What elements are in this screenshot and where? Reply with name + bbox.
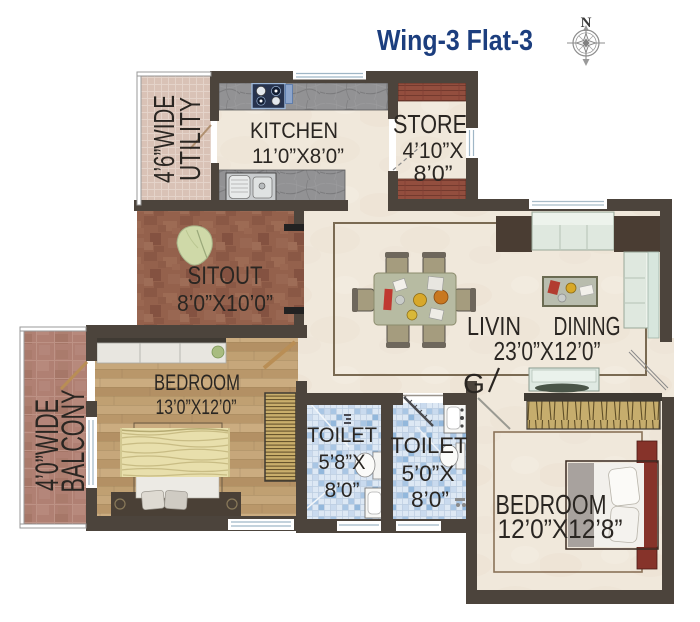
svg-text:5’0”X: 5’0”X: [402, 461, 455, 486]
svg-text:8’0”X10’0”: 8’0”X10’0”: [177, 290, 273, 316]
svg-text:KITCHEN: KITCHEN: [250, 118, 338, 143]
svg-text:8’0”: 8’0”: [414, 161, 453, 186]
svg-text:SITOUT: SITOUT: [188, 262, 263, 290]
svg-text:4’10”X: 4’10”X: [403, 138, 464, 163]
svg-text:23’0”X12’0”: 23’0”X12’0”: [494, 336, 601, 366]
svg-text:TOILET: TOILET: [391, 433, 468, 458]
svg-text:G: G: [463, 368, 485, 399]
svg-text:13’0”X12’0”: 13’0”X12’0”: [156, 396, 237, 419]
svg-text:TOILET: TOILET: [307, 424, 377, 447]
svg-text:11’0”X8’0”: 11’0”X8’0”: [252, 145, 344, 168]
svg-text:UTILITY: UTILITY: [175, 97, 207, 181]
svg-text:8’0”: 8’0”: [411, 487, 449, 512]
svg-text:Wing-3 Flat-3: Wing-3 Flat-3: [377, 25, 533, 57]
svg-text:BEDROOM: BEDROOM: [154, 370, 240, 395]
svg-text:STORE: STORE: [393, 109, 467, 139]
svg-text:8’0”: 8’0”: [325, 479, 360, 502]
svg-text:5’8”X: 5’8”X: [319, 451, 366, 474]
svg-text:12’0”X12’8”: 12’0”X12’8”: [498, 514, 623, 544]
svg-text:BALCONY: BALCONY: [55, 390, 91, 493]
